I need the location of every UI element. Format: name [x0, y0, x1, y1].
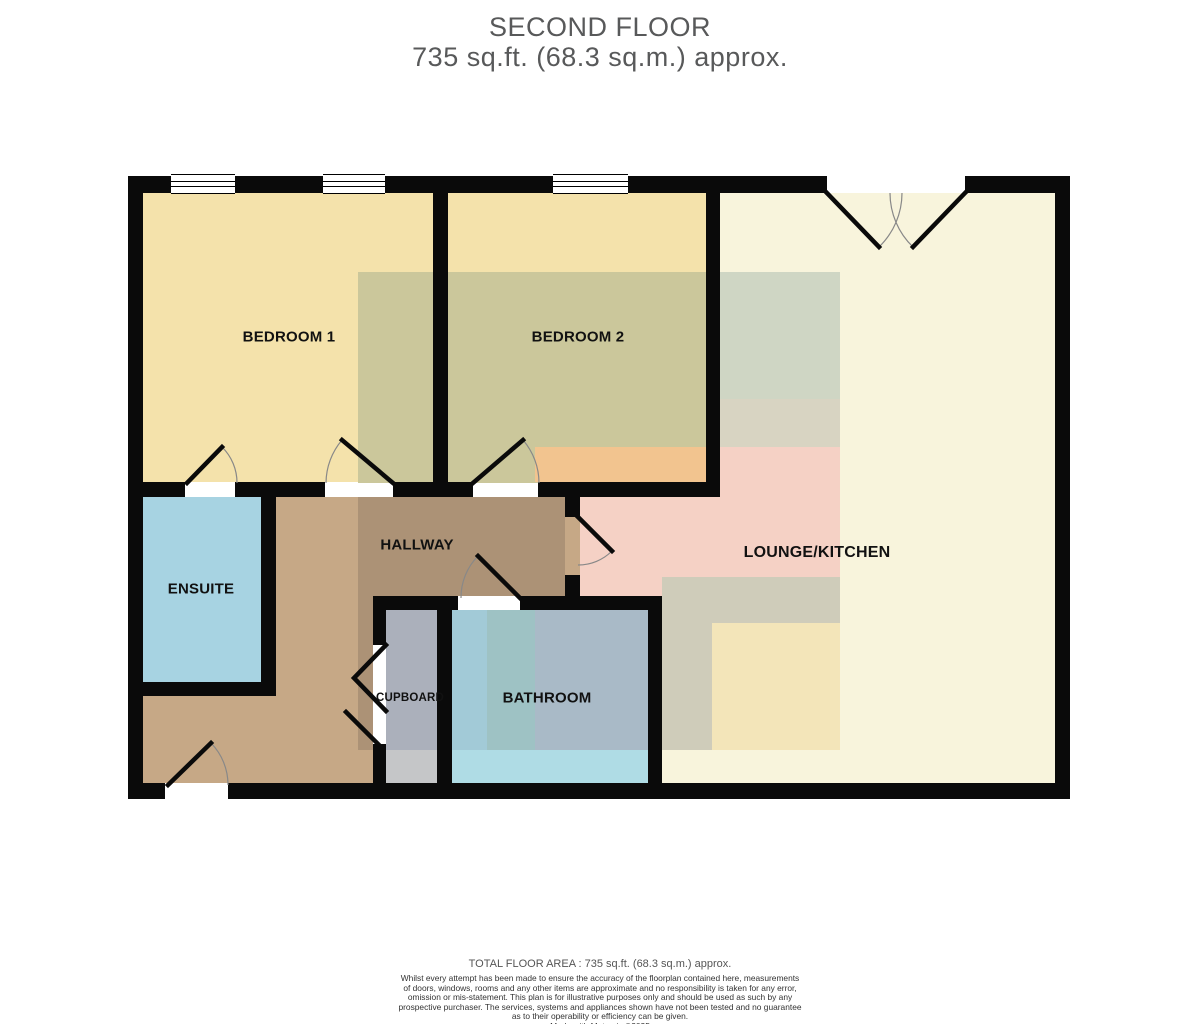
wall-ensuite-bottom [128, 682, 276, 696]
overlay-patch-tanband [720, 399, 840, 447]
floor-name: SECOND FLOOR [0, 12, 1200, 42]
wall-ensuite-right [261, 482, 276, 696]
overlay-patch-pink-b [580, 497, 662, 596]
overlay-patch-orange [535, 447, 706, 482]
label-hallway: HALLWAY [380, 537, 453, 554]
window-bedroom1-left [171, 174, 235, 194]
label-cupboard: CUPBOARD [376, 692, 444, 704]
wall-bed2-right [706, 192, 720, 482]
overlay-patch-bath-right [535, 610, 648, 750]
floor-area: 735 sq.ft. (68.3 sq.m.) approx. [0, 42, 1200, 72]
overlay-patch-graystrip [662, 623, 712, 750]
wall-hall-lounge-lower [565, 575, 580, 596]
label-bedroom1: BEDROOM 1 [243, 329, 336, 346]
overlay-patch-bath-left [452, 610, 487, 750]
doorway-gap-balcony [827, 176, 965, 193]
wall-midband-2 [235, 482, 325, 497]
overlay-patch-yellow [712, 623, 840, 750]
overlay-patch-olive-bed1 [358, 272, 433, 483]
label-ensuite: ENSUITE [168, 581, 234, 598]
label-bedroom2: BEDROOM 2 [532, 329, 625, 346]
wall-bed1-bed2-divider [433, 192, 448, 483]
window-bedroom2 [553, 174, 628, 194]
overlay-patch-halldark2 [358, 596, 373, 750]
overlay-patch-sage [720, 272, 840, 399]
total-floor-area: TOTAL FLOOR AREA : 735 sq.ft. (68.3 sq.m… [0, 958, 1200, 970]
wall-bottom [128, 783, 1070, 799]
wall-midband-3 [393, 482, 473, 497]
wall-right [1055, 176, 1070, 799]
label-bathroom: BATHROOM [503, 690, 592, 707]
wall-cupboard-left-upper [373, 610, 386, 645]
plan-title: SECOND FLOOR 735 sq.ft. (68.3 sq.m.) app… [0, 12, 1200, 72]
wall-midband-1 [128, 482, 185, 497]
label-lounge: LOUNGE/KITCHEN [744, 544, 891, 562]
overlay-patch-pink-c [662, 497, 720, 577]
overlay-patch-grayband [662, 577, 840, 623]
wall-hall-lounge-upper [565, 497, 580, 517]
overlay-patch-bath-mid [487, 610, 535, 750]
wall-bathroom-right [648, 610, 662, 783]
window-bedroom1-right [323, 174, 385, 194]
wall-cupboard-bath-top-1 [373, 596, 458, 610]
wall-cupboard-left-lower [373, 744, 386, 783]
doorway-gap-entrance [165, 783, 228, 799]
wall-cupboard-bath-top-2 [520, 596, 662, 610]
wall-midband-4 [538, 482, 720, 497]
floorplan-page: SECOND FLOOR 735 sq.ft. (68.3 sq.m.) app… [0, 0, 1200, 1024]
footer: TOTAL FLOOR AREA : 735 sq.ft. (68.3 sq.m… [0, 958, 1200, 1024]
room-hallway-entrance [143, 696, 276, 783]
overlay-patch-cupboard-top [386, 610, 437, 750]
